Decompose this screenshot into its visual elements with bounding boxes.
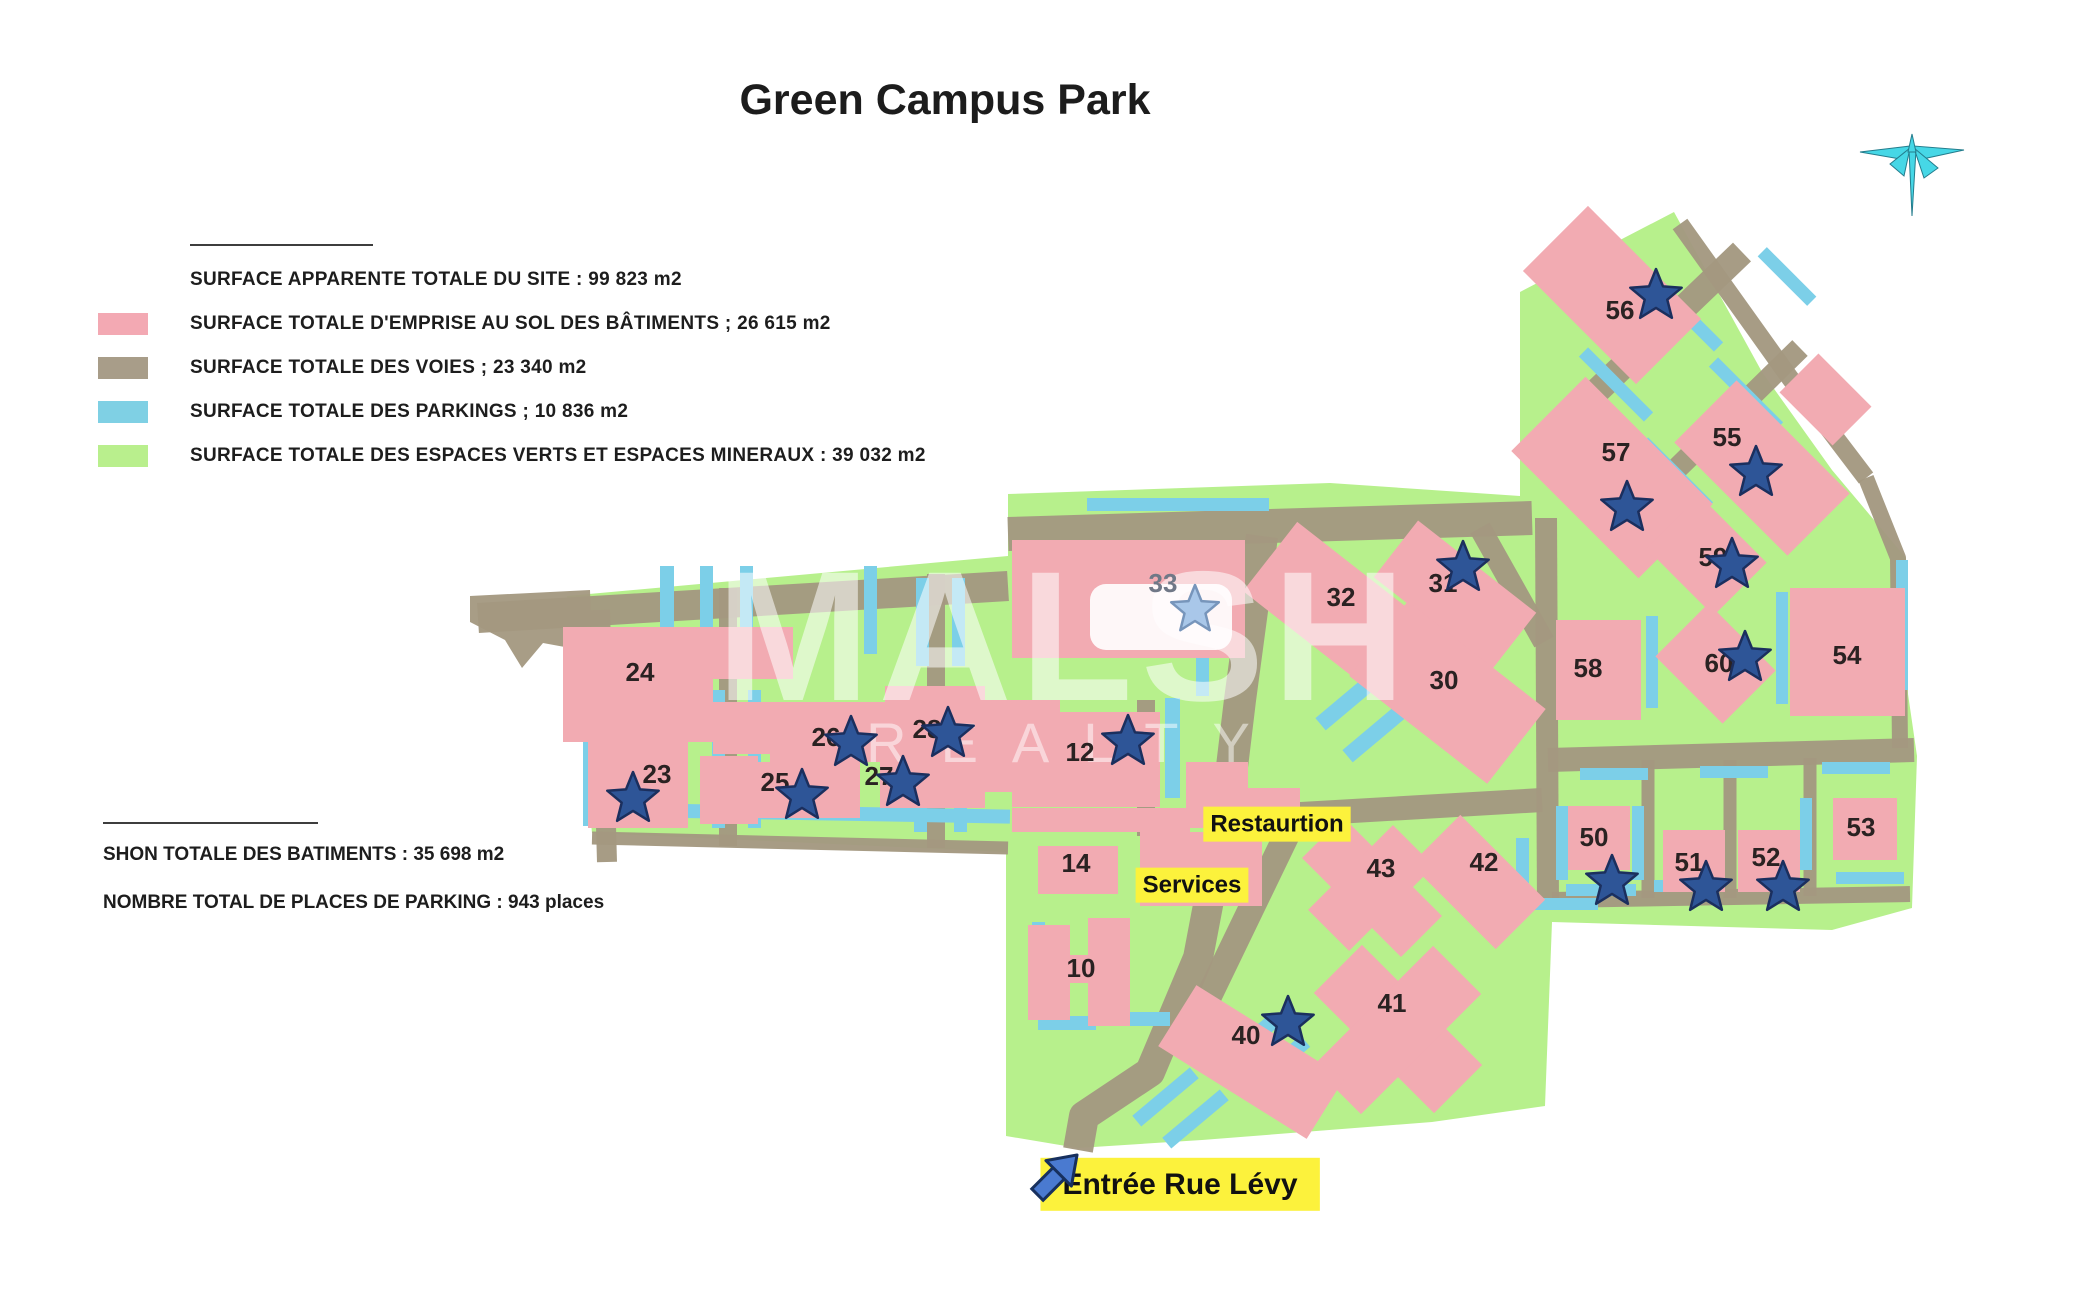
parking-strip [1836,872,1904,884]
parking-strip [1700,766,1768,778]
building-label-50[interactable]: 50 [1580,822,1609,852]
road [1546,518,1548,906]
parking-strip [1087,498,1269,511]
compass-north-icon [1908,134,1916,152]
page: Green Campus Park SURFACE APPARENTE TOTA… [0,0,2077,1300]
building-label-51[interactable]: 51 [1675,847,1704,877]
site-map: MALSHREALTY24232526272812331410323130434… [0,0,2077,1300]
parking-strip [1800,798,1812,870]
parking-strip [1580,768,1648,780]
building-label-32[interactable]: 32 [1327,582,1356,612]
parking-strip [1556,806,1568,880]
watermark-malsh: MALSH [716,534,1414,740]
building-label-10[interactable]: 10 [1067,953,1096,983]
label-tag: Services [1136,868,1249,903]
building-label-56[interactable]: 56 [1606,295,1635,325]
building-label-12[interactable]: 12 [1066,737,1095,767]
building [1028,925,1070,1020]
label-tag: Entrée Rue Lévy [1040,1158,1319,1211]
building-label-43[interactable]: 43 [1367,853,1396,883]
parking-strip [1632,806,1644,880]
building-label-53[interactable]: 53 [1847,812,1876,842]
building-label-54[interactable]: 54 [1833,640,1862,670]
building-label-52[interactable]: 52 [1752,842,1781,872]
parking-strip [1646,616,1658,708]
building-label-55[interactable]: 55 [1713,422,1742,452]
building-label-14[interactable]: 14 [1062,848,1091,878]
building-label-23[interactable]: 23 [643,759,672,789]
building [1012,808,1190,832]
parking-strip [1822,762,1890,774]
building-label-24[interactable]: 24 [626,657,655,687]
building-label-41[interactable]: 41 [1378,988,1407,1018]
building-label-58[interactable]: 58 [1574,653,1603,683]
label-tag-text: Restaurtion [1210,811,1343,838]
building-label-40[interactable]: 40 [1232,1020,1261,1050]
road [1008,518,1532,534]
label-tag-text: Entrée Rue Lévy [1062,1168,1297,1201]
parking-strip [1776,592,1788,704]
building-label-33[interactable]: 33 [1149,568,1178,598]
building-label-42[interactable]: 42 [1470,847,1499,877]
building-label-57[interactable]: 57 [1602,437,1631,467]
label-tag: Restaurtion [1203,807,1350,842]
compass-north-icon [1909,150,1916,216]
road [1548,750,1914,760]
parking-strip [1758,247,1817,306]
label-tag-text: Services [1143,872,1242,899]
building-label-30[interactable]: 30 [1430,665,1459,695]
